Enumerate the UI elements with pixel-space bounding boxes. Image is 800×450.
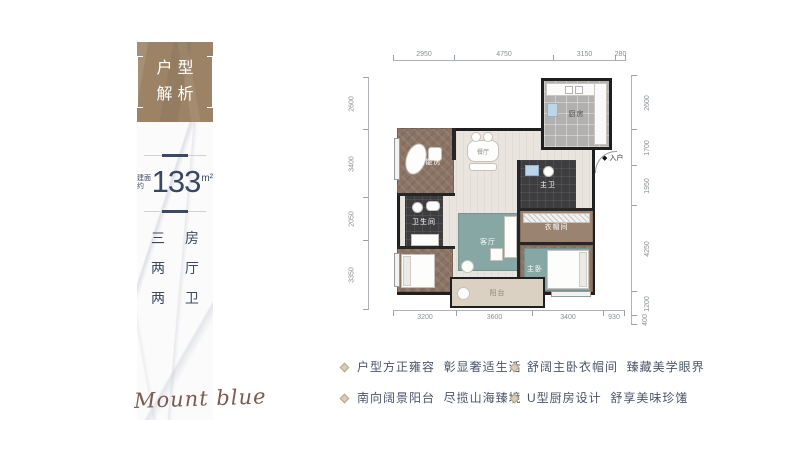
kitchen-sink-icon [547, 103, 558, 117]
dimension-segment: 2950 [393, 55, 454, 61]
room-balcony: 阳台 [450, 277, 545, 308]
section-title-line2: 解析 [151, 82, 198, 108]
sink-icon [412, 202, 423, 213]
floor-plan: 2950 4750 3150 280 3200 3600 3400 930 26… [355, 48, 647, 330]
room-closet: 衣帽间 [520, 210, 593, 244]
dimension-label: 400 [642, 314, 649, 326]
dimension-segment: 3600 [456, 310, 532, 316]
chair-icon [483, 132, 493, 142]
feature-item: 南向阔景阳台 尽揽山海臻境 [341, 391, 501, 405]
room-label: 衣帽间 [545, 222, 569, 232]
feature-item: 舒阔主卧衣帽间 臻藏美学眼界 [511, 360, 705, 374]
room-label: 阳台 [490, 288, 506, 298]
area-unit: m² [201, 173, 213, 184]
stove-burner-icon [565, 86, 573, 94]
dimension-segment: 4750 [454, 55, 553, 61]
dimension-segment: 3350 [363, 240, 369, 310]
diamond-bullet-icon [340, 363, 350, 373]
dimension-segment: 3400 [363, 129, 369, 197]
dimension-label: 1700 [644, 140, 651, 156]
dimension-chain-bottom: 3200 3600 3400 930 [393, 310, 625, 316]
toilet-icon [543, 166, 554, 177]
divider-bottom [144, 210, 206, 213]
bed-icon [547, 250, 589, 289]
dimension-label: 3200 [417, 314, 433, 321]
sofa-icon [504, 216, 517, 258]
room-label: 主卧 [527, 264, 543, 274]
divider-accent [162, 210, 188, 213]
divider-top [144, 154, 206, 157]
dimension-label: 2950 [416, 51, 432, 58]
dimension-chain-left: 2600 3400 2050 3350 [363, 77, 369, 310]
feature-item: U型厨房设计 舒享美味珍馐 [511, 391, 705, 405]
feature-text: 户型方正雍容 彰显奢适生活 [357, 360, 522, 374]
room-label: 卧室 [417, 265, 433, 275]
dimension-label: 4250 [644, 241, 651, 257]
marble-panel: 建面约 133 m² 三 房 两 厅 两 卫 [137, 122, 213, 420]
entry-arrow-icon: ◆ [602, 155, 607, 162]
feature-item: 户型方正雍容 彰显奢适生活 [341, 360, 501, 374]
dimension-label: 280 [615, 51, 627, 58]
dimension-label: 930 [608, 314, 620, 321]
bench-icon [469, 163, 497, 171]
diamond-bullet-icon [510, 394, 520, 404]
layout-line-halls: 两 厅 [137, 253, 213, 283]
dimension-segment: 4250 [631, 205, 637, 291]
dimension-label: 2600 [644, 95, 651, 111]
pillow-icon [579, 252, 587, 287]
dimension-segment: 1950 [631, 165, 637, 205]
entry-label: 入户 [609, 153, 623, 163]
dimension-label: 3400 [349, 156, 356, 172]
room-label: 卫生间 [412, 217, 436, 227]
section-title-box: 户型 解析 [137, 42, 213, 122]
entry-marker: ◆ 入户 [602, 153, 623, 163]
room-label: 餐厅 [477, 147, 489, 156]
chair-icon [457, 287, 470, 300]
kitchen-counter [546, 83, 595, 96]
room-label: 主卫 [540, 180, 556, 190]
brand-signature: Mount blue [134, 383, 305, 413]
wall-segment [397, 246, 455, 249]
dimension-chain-top: 2950 4750 3150 280 [393, 55, 626, 61]
dimension-segment: 930 [603, 310, 625, 316]
feature-text: U型厨房设计 舒享美味珍馐 [527, 391, 688, 405]
area-prefix: 建面约 [137, 175, 152, 193]
pillow-icon [403, 256, 411, 286]
dimension-segment: 400 [631, 315, 637, 325]
chair-icon [471, 132, 481, 142]
room-master-bath: 主卫 [520, 160, 576, 210]
dimension-label: 3600 [487, 314, 503, 321]
divider-accent [162, 154, 188, 157]
dimension-segment: 1200 [631, 291, 637, 315]
window-icon [394, 138, 400, 180]
room-bedroom: 卧室 [397, 248, 453, 292]
wall-segment [520, 208, 593, 211]
wall-segment [452, 128, 456, 160]
armchair-icon [461, 260, 474, 273]
dimension-label: 1950 [644, 178, 651, 194]
feature-text: 南向阔景阳台 尽揽山海臻境 [357, 391, 522, 405]
dimension-label: 4750 [496, 51, 512, 58]
section-title-line1: 户型 [151, 56, 198, 82]
wall-segment [517, 160, 520, 292]
room-label: 厨房 [569, 109, 585, 119]
bracket-right-icon [206, 56, 213, 108]
wall-segment [520, 242, 593, 245]
dimension-segment: 2600 [363, 77, 369, 129]
dimension-segment: 280 [615, 55, 626, 61]
dimension-label: 2050 [349, 211, 356, 227]
room-bathroom: 卫生间 [405, 195, 443, 249]
dimension-label: 2600 [349, 96, 356, 112]
diamond-bullet-icon [510, 363, 520, 373]
bathtub-icon [411, 234, 439, 246]
diamond-bullet-icon [340, 394, 350, 404]
dimension-label: 1200 [644, 296, 651, 312]
room-label: 多功能房 [410, 157, 442, 167]
poster: 户型 解析 建面约 133 m² 三 房 两 厅 两 卫 Mount blue … [0, 0, 800, 450]
room-label: 客厅 [480, 237, 496, 247]
layout-line-rooms: 三 房 [137, 223, 213, 253]
area-row: 建面约 133 m² [137, 166, 213, 197]
area-value: 133 [152, 166, 201, 197]
kitchen-counter [594, 83, 607, 145]
side-table-icon [490, 248, 503, 261]
sink-icon [525, 165, 539, 176]
layout-summary: 三 房 两 厅 两 卫 [137, 223, 213, 313]
dimension-segment: 3200 [393, 310, 456, 316]
section-title: 户型 解析 [151, 56, 198, 109]
toilet-icon [426, 201, 440, 211]
dimension-label: 3150 [577, 51, 593, 58]
layout-line-baths: 两 卫 [137, 283, 213, 313]
dimension-label: 3400 [560, 314, 576, 321]
room-multifunction: 多功能房 [397, 128, 454, 195]
dimension-segment: 1700 [631, 129, 637, 165]
dimension-segment: 3150 [553, 55, 615, 61]
dimension-chain-right: 2600 1700 1950 4250 1200 400 [631, 75, 637, 325]
wall-segment [397, 193, 455, 196]
dining-table: 餐厅 [467, 140, 499, 162]
window-icon [551, 291, 591, 297]
dimension-segment: 3400 [532, 310, 603, 316]
dimension-label: 3350 [349, 267, 356, 283]
stove-burner-icon [575, 86, 583, 94]
room-kitchen: 厨房 [541, 78, 612, 150]
dimension-segment: 2050 [363, 197, 369, 240]
feature-text: 舒阔主卧衣帽间 臻藏美学眼界 [527, 360, 705, 374]
feature-list: 户型方正雍容 彰显奢适生活 舒阔主卧衣帽间 臻藏美学眼界 南向阔景阳台 尽揽山海… [341, 360, 686, 406]
window-icon [394, 253, 400, 287]
dimension-segment: 2600 [631, 75, 637, 129]
bracket-left-icon [137, 56, 144, 108]
